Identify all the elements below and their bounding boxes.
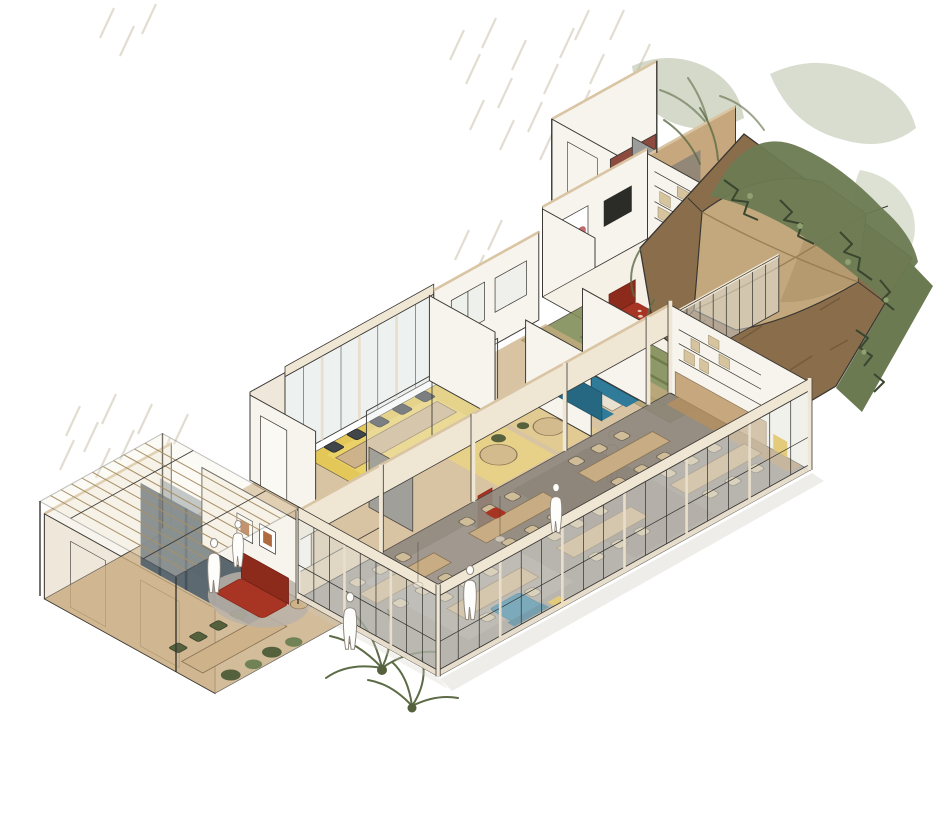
sketch-stage	[0, 0, 935, 836]
axonometric-sketch	[0, 0, 935, 836]
